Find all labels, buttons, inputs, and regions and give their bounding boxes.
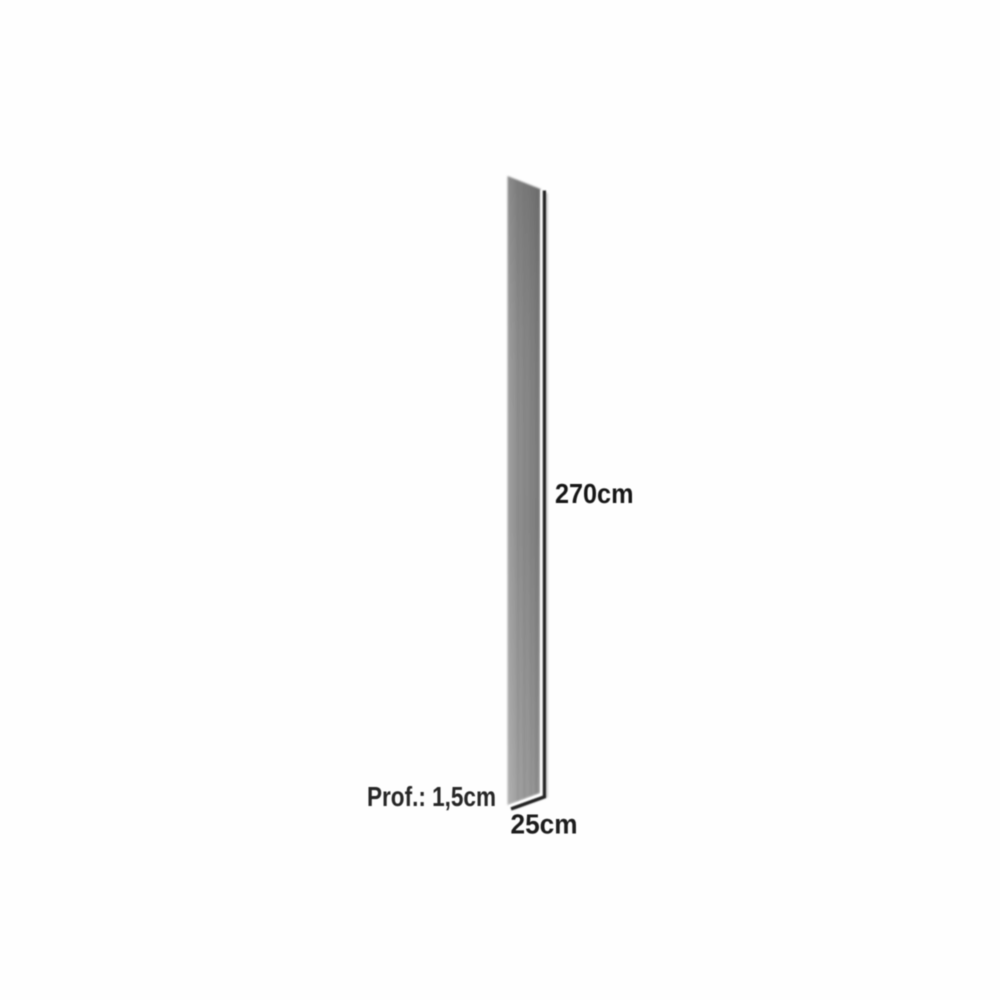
svg-text:25cm: 25cm (511, 807, 578, 839)
svg-text:270cm: 270cm (555, 477, 634, 509)
svg-text:Prof.: 1,5cm: Prof.: 1,5cm (367, 780, 496, 812)
